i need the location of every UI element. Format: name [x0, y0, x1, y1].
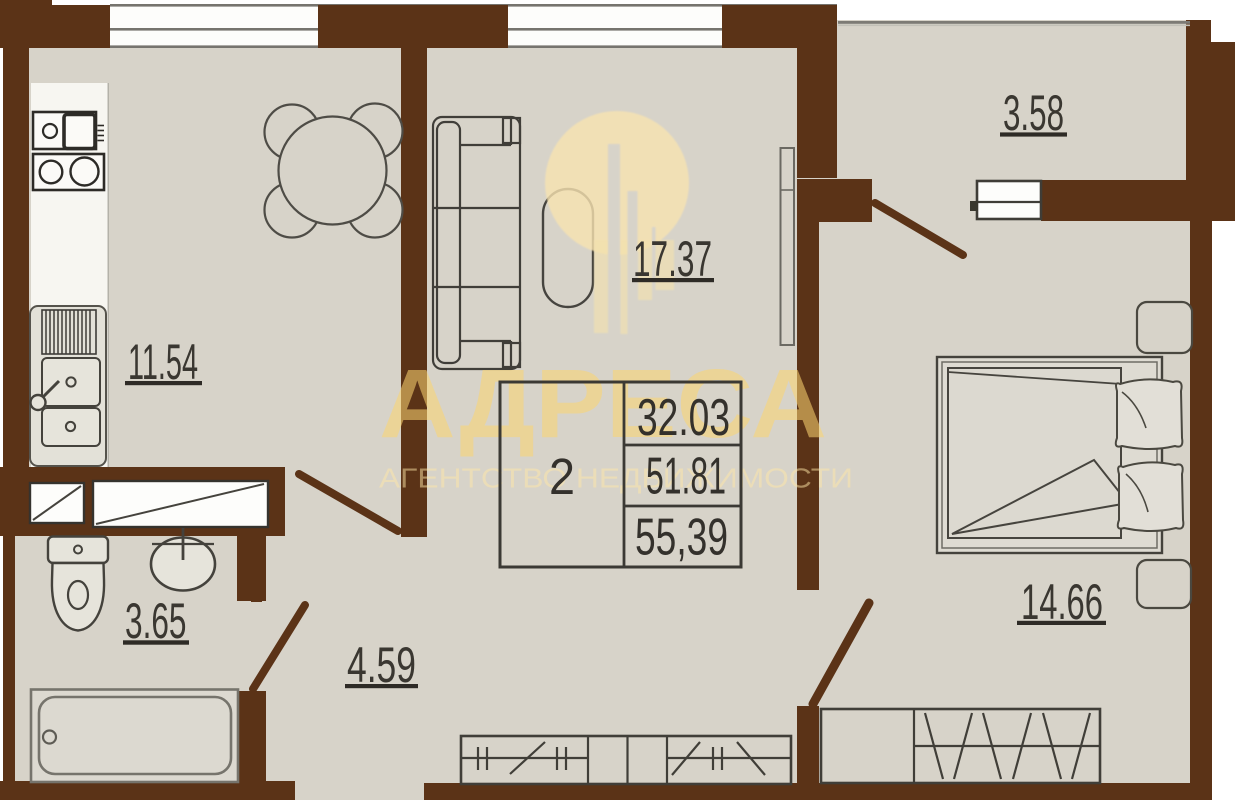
svg-text:32.03: 32.03 [637, 389, 730, 447]
svg-text:АГЕНТСТВО НЕДВИЖИМОСТИ: АГЕНТСТВО НЕДВИЖИМОСТИ [379, 463, 853, 494]
svg-text:55,39: 55,39 [635, 509, 728, 567]
svg-text:АДРЕСА: АДРЕСА [379, 349, 827, 458]
svg-text:2: 2 [549, 448, 575, 505]
svg-text:51.81: 51.81 [646, 448, 726, 506]
